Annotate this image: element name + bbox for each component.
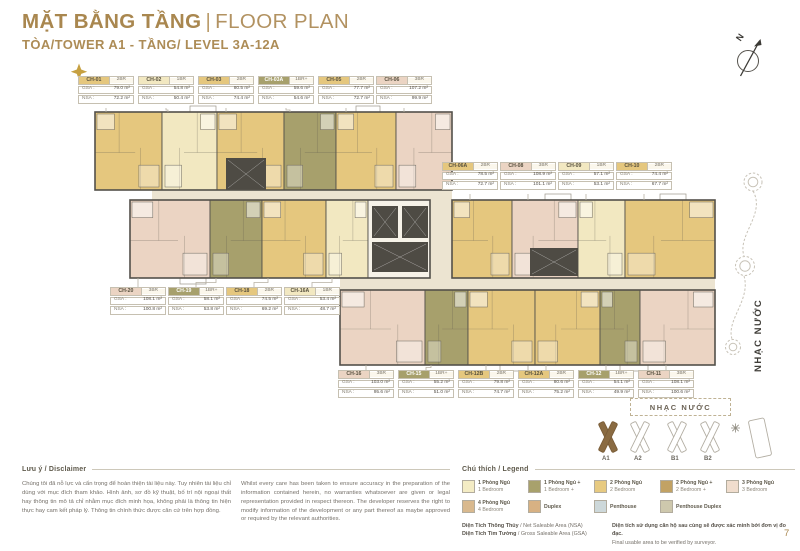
gsa-label: GSA : (169, 298, 196, 303)
unit-type-label: 3BR (142, 289, 165, 294)
unit-info-box-CH-03A: CH-03A 1BR+ GSA : 59.6 m² NSA : 54.6 m² (258, 76, 314, 104)
unit-box-header: CH-06 3BR (376, 76, 432, 85)
gsa-value: 59.6 m² (286, 87, 313, 92)
gsa-label: GSA : (227, 298, 254, 303)
unit-box-header: CH-02 1BR (138, 76, 194, 85)
unit-info-box-CH-12: CH-12 1BR+ GSA : 54.1 m² NSA : 49.9 m² (578, 370, 634, 398)
legend-swatch (528, 480, 541, 493)
gsa-value: 54.8 m² (166, 87, 193, 92)
gsa-value: 74.4 m² (644, 173, 671, 178)
unit-type-label: 1BR+ (610, 372, 633, 377)
legend-label-en: 2 Bedroom + (676, 487, 712, 493)
site-map: A1A2B1B2 (598, 418, 771, 462)
unit-type-label: 2BR (110, 78, 133, 83)
legend-heading-text: Chú thích / Legend (462, 466, 529, 473)
site-map-tower-A2 (630, 421, 649, 452)
legend-label-en: 1 Bedroom + (544, 487, 580, 493)
compass-n-label: N (734, 32, 746, 43)
unit-type-label: 1BR (590, 164, 613, 169)
disclaimer-text-en: Whilst every care has been taken to ensu… (241, 480, 450, 524)
gsa-value: 78.5 m² (470, 173, 497, 178)
gsa-label: GSA : (319, 87, 346, 92)
site-map-tower-label: B2 (704, 456, 712, 462)
unit-nsa-row: NSA : 74.7 m² (458, 389, 514, 398)
unit-type-label: 1BR+ (290, 78, 313, 83)
gsa-value: 80.6 m² (546, 381, 573, 386)
unit-id: CH-01 (79, 77, 110, 84)
gsa-label: GSA : (519, 381, 546, 386)
nsa-label: NSA : (377, 97, 404, 102)
gsa-label: GSA : (285, 298, 312, 303)
unit-type-label: 2BR (230, 78, 253, 83)
unit-id: CH-16A (285, 288, 316, 295)
nsa-value: 99.9 m² (404, 97, 431, 102)
nsa-value: 50.4 m² (166, 97, 193, 102)
unit-type-label: 2BR (258, 289, 281, 294)
unit-info-box-CH-12B: CH-12B 2BR GSA : 79.8 m² NSA : 74.7 m² (458, 370, 514, 398)
nsa-value: 95.6 m² (366, 391, 393, 396)
area-notes: Diện Tích Thông Thủy / Net Saleable Area… (462, 522, 795, 547)
gsa-value: 108.1 m² (138, 298, 165, 303)
legend-item-3-ph-ng-ng-: 3 Phòng Ngủ3 Bedroom (726, 480, 792, 493)
fountain-label: NHẠC NƯỚC (753, 292, 764, 372)
nsa-label: NSA : (339, 391, 366, 396)
nsa-label: NSA : (559, 183, 586, 188)
unit-box-header: CH-05 2BR (318, 76, 374, 85)
legend-swatch (528, 500, 541, 513)
surveyor-note: Diện tích sử dụng căn hộ sau cùng sẽ đượ… (612, 522, 795, 547)
site-map-tower-B2 (700, 421, 719, 452)
unit-info-box-CH-16A: CH-16A 1BR GSA : 53.4 m² NSA : 48.7 m² (284, 287, 340, 315)
gsa-value: 74.5 m² (254, 298, 281, 303)
legend-label-en: 2 Bedroom (610, 487, 642, 493)
disclaimer-section: Lưu ý / Disclaimer Chúng tôi đã nỗ lực v… (22, 466, 450, 524)
gsa-value: 79.8 m² (486, 381, 513, 386)
unit-box-header: CH-08 3BR (500, 162, 556, 171)
unit-box-header: CH-12A 2BR (518, 370, 574, 379)
nsa-value: 53.8 m² (196, 308, 223, 313)
legend-label-vi: 1 Phòng Ngủ + (544, 480, 580, 486)
unit-nsa-row: NSA : 67.7 m² (616, 181, 672, 190)
unit-nsa-row: NSA : 100.6 m² (638, 389, 694, 398)
unit-type-label: 1BR+ (430, 372, 453, 377)
unit-gsa-row: GSA : 55.2 m² (398, 380, 454, 389)
legend-item-1-ph-ng-ng-: 1 Phòng Ngủ1 Bedroom (462, 480, 528, 493)
legend-swatch (594, 500, 607, 513)
legend-item-penthouse: Penthouse (594, 500, 660, 513)
unit-info-box-CH-15: CH-15 1BR+ GSA : 55.2 m² NSA : 51.0 m² (398, 370, 454, 398)
unit-box-header: CH-11 3BR (638, 370, 694, 379)
unit-nsa-row: NSA : 99.9 m² (376, 95, 432, 104)
unit-nsa-row: NSA : 100.8 m² (110, 306, 166, 315)
legend-label-vi: Penthouse Duplex (676, 504, 721, 510)
gsa-label: GSA : (259, 87, 286, 92)
unit-box-header: CH-06A 2BR (442, 162, 498, 171)
legend-section: Chú thích / Legend 1 Phòng Ngủ1 Bedroom … (462, 466, 795, 547)
surveyor-note-en: Final usable area to be verified by surv… (612, 539, 795, 547)
unit-gsa-row: GSA : 77.7 m² (318, 86, 374, 95)
unit-info-box-CH-08: CH-08 3BR GSA : 108.9 m² NSA : 101.1 m² (500, 162, 556, 190)
unit-nsa-row: NSA : 51.0 m² (398, 389, 454, 398)
site-map-label-box: NHẠC NƯỚC (630, 398, 731, 416)
unit-type-label: 2BR (490, 372, 513, 377)
unit-id: CH-18 (227, 288, 258, 295)
unit-type-label: 1BR+ (200, 289, 223, 294)
unit-id: CH-08 (501, 163, 532, 170)
area-abbreviations: Diện Tích Thông Thủy / Net Saleable Area… (462, 522, 600, 547)
unit-id: CH-03A (259, 77, 290, 84)
gsa-label-en: / Gross Saleable Area (GSA) (516, 531, 586, 537)
nsa-label: NSA : (79, 97, 106, 102)
gsa-label: GSA : (339, 381, 366, 386)
unit-nsa-row: NSA : 49.9 m² (578, 389, 634, 398)
unit-gsa-row: GSA : 79.8 m² (458, 380, 514, 389)
unit-box-header: CH-12 1BR+ (578, 370, 634, 379)
unit-nsa-row: NSA : 101.1 m² (500, 181, 556, 190)
legend-swatch (462, 480, 475, 493)
unit-box-header: CH-03 2BR (198, 76, 254, 85)
gsa-value: 80.5 m² (226, 87, 253, 92)
legend-label-en: 3 Bedroom (742, 487, 774, 493)
disclaimer-heading-text: Lưu ý / Disclaimer (22, 466, 86, 473)
unit-type-label: 2BR (550, 372, 573, 377)
site-map-label: NHẠC NƯỚC (650, 403, 712, 412)
unit-box-header: CH-01 2BR (78, 76, 134, 85)
site-map-tower-B1 (667, 421, 686, 452)
unit-box-header: CH-10 2BR (616, 162, 672, 171)
compass: N (734, 32, 761, 76)
unit-type-label: 3BR (408, 78, 431, 83)
legend-swatch (462, 500, 475, 513)
unit-id: CH-12 (579, 371, 610, 378)
gsa-label: GSA : (199, 87, 226, 92)
nsa-value: 74.7 m² (486, 391, 513, 396)
unit-info-box-CH-10: CH-10 2BR GSA : 74.4 m² NSA : 67.7 m² (616, 162, 672, 190)
gsa-value: 103.0 m² (366, 381, 393, 386)
unit-nsa-row: NSA : 48.7 m² (284, 306, 340, 315)
unit-gsa-row: GSA : 80.6 m² (518, 380, 574, 389)
unit-id: CH-05 (319, 77, 350, 84)
unit-id: CH-12B (459, 371, 490, 378)
nsa-label: NSA : (443, 183, 470, 188)
gsa-value: 108.9 m² (528, 173, 555, 178)
surveyor-note-vi: Diện tích sử dụng căn hộ sau cùng sẽ đượ… (612, 522, 795, 539)
site-map-star-icon (731, 424, 740, 433)
gsa-value: 107.2 m² (404, 87, 431, 92)
nsa-label-en: / Net Saleable Area (NSA) (519, 523, 583, 529)
gsa-label: GSA : (579, 381, 606, 386)
unit-type-label: 2BR (648, 164, 671, 169)
nsa-label: NSA : (111, 308, 138, 313)
unit-nsa-row: NSA : 50.4 m² (138, 95, 194, 104)
unit-info-box-CH-02: CH-02 1BR GSA : 54.8 m² NSA : 50.4 m² (138, 76, 194, 104)
unit-info-box-CH-06A: CH-06A 2BR GSA : 78.5 m² NSA : 72.7 m² (442, 162, 498, 190)
nsa-label: NSA : (579, 391, 606, 396)
unit-gsa-row: GSA : 78.5 m² (442, 172, 498, 181)
nsa-value: 48.7 m² (312, 308, 339, 313)
nsa-value: 72.7 m² (470, 183, 497, 188)
nsa-value: 101.1 m² (528, 183, 555, 188)
floor-plan-page: MẶT BẰNG TẦNG|FLOOR PLAN TÒA/TOWER A1 - … (0, 0, 800, 551)
site-map-tower-label: A2 (634, 456, 642, 462)
legend-label-vi: 1 Phòng Ngủ (478, 480, 510, 486)
unit-info-box-CH-11: CH-11 3BR GSA : 108.1 m² NSA : 100.6 m² (638, 370, 694, 398)
unit-box-header: CH-09 1BR (558, 162, 614, 171)
unit-type-label: 2BR (474, 164, 497, 169)
unit-nsa-row: NSA : 72.2 m² (78, 95, 134, 104)
unit-id: CH-03 (199, 77, 230, 84)
unit-id: CH-15 (399, 371, 430, 378)
legend-swatch (660, 500, 673, 513)
unit-gsa-row: GSA : 74.5 m² (226, 297, 282, 306)
gsa-value: 108.1 m² (666, 381, 693, 386)
legend-label-vi: Duplex (544, 504, 561, 510)
gsa-value: 54.1 m² (606, 381, 633, 386)
unit-type-label: 2BR (350, 78, 373, 83)
nsa-value: 100.6 m² (666, 391, 693, 396)
unit-nsa-row: NSA : 54.6 m² (258, 95, 314, 104)
heading-rule (92, 469, 450, 470)
legend-item-penthouse-duplex: Penthouse Duplex (660, 500, 726, 513)
nsa-label: NSA : (399, 391, 426, 396)
unit-info-box-CH-19: CH-19 1BR+ GSA : 58.1 m² NSA : 53.8 m² (168, 287, 224, 315)
gsa-label: GSA : (377, 87, 404, 92)
nsa-label: NSA : (519, 391, 546, 396)
gsa-label: GSA : (617, 173, 644, 178)
unit-info-box-CH-09: CH-09 1BR GSA : 57.1 m² NSA : 53.1 m² (558, 162, 614, 190)
legend-heading: Chú thích / Legend (462, 466, 795, 473)
nsa-value: 49.9 m² (606, 391, 633, 396)
unit-gsa-row: GSA : 103.0 m² (338, 380, 394, 389)
unit-nsa-row: NSA : 69.2 m² (226, 306, 282, 315)
unit-info-box-CH-06: CH-06 3BR GSA : 107.2 m² NSA : 99.9 m² (376, 76, 432, 104)
legend-label-vi: 3 Phòng Ngủ (742, 480, 774, 486)
gsa-value: 55.2 m² (426, 381, 453, 386)
unit-id: CH-19 (169, 288, 200, 295)
nsa-label: NSA : (259, 97, 286, 102)
unit-gsa-row: GSA : 74.4 m² (616, 172, 672, 181)
nsa-value: 72.2 m² (106, 97, 133, 102)
unit-info-box-CH-05: CH-05 2BR GSA : 77.7 m² NSA : 72.7 m² (318, 76, 374, 104)
nsa-label: NSA : (139, 97, 166, 102)
unit-nsa-row: NSA : 53.1 m² (558, 181, 614, 190)
legend-swatch (594, 480, 607, 493)
unit-info-box-CH-03: CH-03 2BR GSA : 80.5 m² NSA : 74.4 m² (198, 76, 254, 104)
unit-gsa-row: GSA : 80.5 m² (198, 86, 254, 95)
unit-id: CH-02 (139, 77, 170, 84)
site-map-tower-label: A1 (602, 456, 610, 462)
page-number: 7 (784, 528, 789, 539)
gsa-label: GSA : (399, 381, 426, 386)
unit-id: CH-06A (443, 163, 474, 170)
nsa-value: 75.2 m² (546, 391, 573, 396)
legend-label-vi: 2 Phòng Ngủ (610, 480, 642, 486)
legend-item-1-ph-ng-ng-: 1 Phòng Ngủ +1 Bedroom + (528, 480, 594, 493)
unit-nsa-row: NSA : 72.7 m² (442, 181, 498, 190)
nsa-label: NSA : (617, 183, 644, 188)
gsa-label: GSA : (639, 381, 666, 386)
legend-swatch (660, 480, 673, 493)
nsa-value: 53.1 m² (586, 183, 613, 188)
nsa-value: 51.0 m² (426, 391, 453, 396)
site-map-extra-building (748, 418, 772, 458)
unit-info-box-CH-16: CH-16 3BR GSA : 103.0 m² NSA : 95.6 m² (338, 370, 394, 398)
nsa-value: 74.4 m² (226, 97, 253, 102)
disclaimer-heading: Lưu ý / Disclaimer (22, 466, 450, 473)
legend-label-vi: 2 Phòng Ngủ + (676, 480, 712, 486)
gsa-label: GSA : (501, 173, 528, 178)
unit-gsa-row: GSA : 108.1 m² (110, 297, 166, 306)
heading-rule (535, 469, 795, 470)
site-map-tower-A1 (598, 421, 617, 452)
nsa-label: NSA : (639, 391, 666, 396)
nsa-label: NSA : (501, 183, 528, 188)
unit-id: CH-12A (519, 371, 550, 378)
legend-label-vi: Penthouse (610, 504, 637, 510)
unit-gsa-row: GSA : 53.4 m² (284, 297, 340, 306)
unit-id: CH-11 (639, 371, 670, 378)
unit-gsa-row: GSA : 108.1 m² (638, 380, 694, 389)
gsa-label: GSA : (443, 173, 470, 178)
unit-box-header: CH-16A 1BR (284, 287, 340, 296)
gsa-label: GSA : (79, 87, 106, 92)
unit-type-label: 3BR (532, 164, 555, 169)
unit-gsa-row: GSA : 59.6 m² (258, 86, 314, 95)
site-map-tower-label: B1 (671, 456, 679, 462)
unit-gsa-row: GSA : 54.8 m² (138, 86, 194, 95)
legend-item-2-ph-ng-ng-: 2 Phòng Ngủ2 Bedroom (594, 480, 660, 493)
unit-box-header: CH-20 3BR (110, 287, 166, 296)
unit-box-header: CH-03A 1BR+ (258, 76, 314, 85)
nsa-value: 100.8 m² (138, 308, 165, 313)
unit-gsa-row: GSA : 58.1 m² (168, 297, 224, 306)
gsa-label: GSA : (111, 298, 138, 303)
nsa-value: 72.7 m² (346, 97, 373, 102)
unit-gsa-row: GSA : 108.9 m² (500, 172, 556, 181)
gsa-value: 58.1 m² (196, 298, 223, 303)
unit-box-header: CH-16 3BR (338, 370, 394, 379)
legend-item-duplex: Duplex (528, 500, 594, 513)
legend-label-vi: 4 Phòng Ngủ (478, 500, 510, 506)
unit-type-label: 3BR (370, 372, 393, 377)
nsa-value: 69.2 m² (254, 308, 281, 313)
nsa-label: NSA : (169, 308, 196, 313)
nsa-label: NSA : (199, 97, 226, 102)
nsa-label: NSA : (319, 97, 346, 102)
nsa-label-vi: Diện Tích Thông Thủy (462, 523, 519, 529)
unit-gsa-row: GSA : 54.1 m² (578, 380, 634, 389)
gsa-label: GSA : (459, 381, 486, 386)
nsa-label: NSA : (459, 391, 486, 396)
unit-nsa-row: NSA : 75.2 m² (518, 389, 574, 398)
unit-info-box-CH-12A: CH-12A 2BR GSA : 80.6 m² NSA : 75.2 m² (518, 370, 574, 398)
unit-id: CH-10 (617, 163, 648, 170)
unit-id: CH-20 (111, 288, 142, 295)
gsa-value: 53.4 m² (312, 298, 339, 303)
unit-id: CH-16 (339, 371, 370, 378)
unit-box-header: CH-12B 2BR (458, 370, 514, 379)
legend-item-2-ph-ng-ng-: 2 Phòng Ngủ +2 Bedroom + (660, 480, 726, 493)
nsa-value: 54.6 m² (286, 97, 313, 102)
unit-info-box-CH-20: CH-20 3BR GSA : 108.1 m² NSA : 100.8 m² (110, 287, 166, 315)
unit-type-label: 1BR (316, 289, 339, 294)
nsa-label: NSA : (285, 308, 312, 313)
unit-type-label: 1BR (170, 78, 193, 83)
disclaimer-text-vi: Chúng tôi đã nỗ lực và cẩn trọng để hoàn… (22, 480, 231, 524)
unit-info-box-CH-18: CH-18 2BR GSA : 74.5 m² NSA : 69.2 m² (226, 287, 282, 315)
unit-nsa-row: NSA : 95.6 m² (338, 389, 394, 398)
unit-id: CH-06 (377, 77, 408, 84)
unit-nsa-row: NSA : 74.4 m² (198, 95, 254, 104)
legend-label-en: 4 Bedroom (478, 507, 510, 513)
legend-items: 1 Phòng Ngủ1 Bedroom 1 Phòng Ngủ +1 Bedr… (462, 480, 795, 513)
gsa-value: 77.7 m² (346, 87, 373, 92)
unit-gsa-row: GSA : 57.1 m² (558, 172, 614, 181)
legend-swatch (726, 480, 739, 493)
gsa-label: GSA : (559, 173, 586, 178)
legend-item-4-ph-ng-ng-: 4 Phòng Ngủ4 Bedroom (462, 500, 528, 513)
unit-info-box-CH-01: CH-01 2BR GSA : 79.0 m² NSA : 72.2 m² (78, 76, 134, 104)
gsa-label: GSA : (139, 87, 166, 92)
gsa-label-vi: Diện Tích Tim Tường (462, 531, 516, 537)
unit-box-header: CH-18 2BR (226, 287, 282, 296)
unit-gsa-row: GSA : 79.0 m² (78, 86, 134, 95)
nsa-value: 67.7 m² (644, 183, 671, 188)
legend-label-en: 1 Bedroom (478, 487, 510, 493)
unit-id: CH-09 (559, 163, 590, 170)
gsa-value: 57.1 m² (586, 173, 613, 178)
unit-nsa-row: NSA : 53.8 m² (168, 306, 224, 315)
nsa-label: NSA : (227, 308, 254, 313)
unit-box-header: CH-19 1BR+ (168, 287, 224, 296)
unit-type-label: 3BR (670, 372, 693, 377)
unit-box-header: CH-15 1BR+ (398, 370, 454, 379)
unit-nsa-row: NSA : 72.7 m² (318, 95, 374, 104)
unit-gsa-row: GSA : 107.2 m² (376, 86, 432, 95)
gsa-value: 79.0 m² (106, 87, 133, 92)
